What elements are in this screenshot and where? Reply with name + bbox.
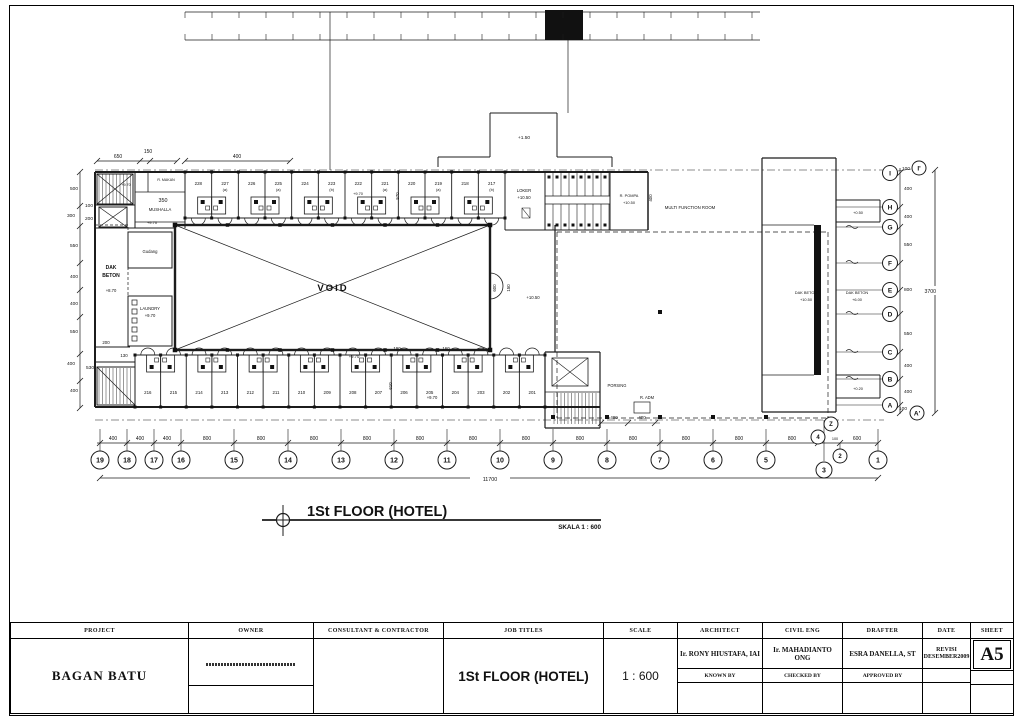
grid-bubble-label: 6 bbox=[711, 458, 715, 465]
plan-label: +1.50 bbox=[518, 135, 530, 141]
plan-label: +0.50 bbox=[853, 210, 864, 215]
plan-label: +10.50 bbox=[800, 297, 813, 302]
plan-label: +10.50 bbox=[526, 295, 540, 300]
grid-bubble-label: 1 bbox=[876, 458, 880, 465]
consultant-value bbox=[314, 639, 443, 713]
room-number: 223 bbox=[328, 181, 336, 186]
known-by-cell bbox=[678, 683, 762, 713]
plan-label: +10.50 bbox=[623, 200, 636, 205]
grid-bubble-label: 17 bbox=[150, 458, 158, 465]
plan-title: 1St FLOOR (HOTEL) bbox=[307, 504, 447, 520]
sheet-header: SHEET bbox=[971, 623, 1013, 639]
dim-label: 800 bbox=[576, 436, 585, 442]
title-block-consultant: CONSULTANT & CONTRACTOR bbox=[314, 623, 444, 713]
dim-label: 400 bbox=[233, 154, 242, 160]
room-number: 213 bbox=[221, 390, 229, 395]
plan-label: R. MAKAN bbox=[157, 178, 175, 182]
dim-label: 500 bbox=[70, 186, 78, 192]
dim-label: 550 bbox=[904, 242, 912, 248]
dim-label: 150 bbox=[144, 149, 153, 155]
floor-plan: 6501504005001003002005504004005504005304… bbox=[0, 0, 1024, 600]
dim-label: 400 bbox=[904, 363, 912, 369]
title-block-architect: ARCHITECT Ir. RONY HIUSTAFA, IAI KNOWN B… bbox=[678, 623, 763, 713]
dim-label: 570 bbox=[395, 192, 400, 200]
grid-bubble-label: A bbox=[888, 402, 893, 409]
grid-bubble-label: 13 bbox=[337, 458, 345, 465]
plan-label: +9.70 bbox=[427, 395, 438, 400]
plan-label: DAK BETON bbox=[795, 290, 818, 295]
dim-label: 650 bbox=[114, 154, 123, 160]
dim-label: 800 bbox=[257, 436, 266, 442]
dim-label: 550 bbox=[70, 243, 78, 249]
grid-bubble-label: 16 bbox=[177, 458, 185, 465]
title-block-date: DATE REVISI DESEMBER2009 bbox=[923, 623, 971, 713]
dim-label: 200 bbox=[85, 216, 93, 222]
dim-label: 400 bbox=[70, 301, 78, 307]
title-block-civil: CIVIL ENG Ir. MAHADIANTO ONG CHECKED BY bbox=[763, 623, 843, 713]
dim-label: 400 bbox=[163, 436, 172, 442]
known-by-header: KNOWN BY bbox=[678, 668, 762, 683]
owner-divider bbox=[189, 685, 313, 686]
grid-bubble-label: E bbox=[888, 287, 893, 294]
title-block-owner: OWNER bbox=[189, 623, 314, 713]
room-number: 215 bbox=[170, 390, 178, 395]
room-suffix: (a) bbox=[276, 187, 281, 192]
sheet-number: A5 bbox=[973, 640, 1011, 669]
project-value: BAGAN BATU bbox=[11, 639, 188, 713]
plan-label: PORSING bbox=[608, 383, 627, 388]
date-header: DATE bbox=[923, 623, 970, 639]
job-header: JOB TITLES bbox=[444, 623, 603, 639]
grid-bubble-label: C bbox=[888, 349, 893, 356]
dim-label: 800 bbox=[310, 436, 319, 442]
room-number: 221 bbox=[381, 181, 389, 186]
dim-label: 400 bbox=[904, 214, 912, 220]
title-block-job: JOB TITLES 1St FLOOR (HOTEL) bbox=[444, 623, 604, 713]
room-number: 226 bbox=[248, 181, 256, 186]
grid-bubble-label: H bbox=[888, 204, 893, 211]
room-suffix: (a) bbox=[383, 187, 388, 192]
room-suffix: (b) bbox=[329, 187, 334, 192]
sheet-empty-row bbox=[971, 670, 1013, 685]
plan-label: DAK bbox=[106, 265, 117, 271]
grid-bubble-label: G bbox=[887, 224, 892, 231]
dim-label: 400 bbox=[109, 436, 118, 442]
dim-label: 800 bbox=[735, 436, 744, 442]
room-number: 210 bbox=[298, 390, 306, 395]
dim-label: 130 bbox=[120, 353, 128, 358]
dim-label: 550 bbox=[70, 329, 78, 335]
owner-header: OWNER bbox=[189, 623, 313, 639]
title-block: PROJECT BAGAN BATU OWNER CONSULTANT & CO… bbox=[10, 622, 1014, 714]
plan-label: DAK BETON bbox=[846, 290, 869, 295]
room-suffix: (a) bbox=[436, 187, 441, 192]
room-number: 201 bbox=[529, 390, 537, 395]
dim-label: 600 bbox=[492, 284, 497, 292]
dim-label: 800 bbox=[363, 436, 372, 442]
grid-bubble-label: 14 bbox=[284, 458, 292, 465]
grid-bubble-label: 19 bbox=[96, 458, 104, 465]
plan-label: MUSHALLA bbox=[149, 207, 172, 212]
scale-value: 1 : 600 bbox=[604, 639, 677, 713]
dim-label: 800 bbox=[629, 436, 638, 442]
room-number: 216 bbox=[144, 390, 152, 395]
dim-label: 160 bbox=[442, 346, 450, 351]
plan-label: +9.70 bbox=[145, 313, 156, 318]
room-number: 227 bbox=[221, 181, 229, 186]
grid-bubble-label: A' bbox=[914, 410, 921, 417]
project-header: PROJECT bbox=[11, 623, 188, 639]
grid-bubble-label: 15 bbox=[230, 458, 238, 465]
plan-label: R. POMPA bbox=[620, 193, 639, 198]
dim-label: 800 bbox=[469, 436, 478, 442]
room-number: 207 bbox=[375, 390, 383, 395]
grid-bubble-label: 5 bbox=[764, 458, 768, 465]
scale-header: SCALE bbox=[604, 623, 677, 639]
owner-cell bbox=[189, 639, 313, 713]
room-number: 211 bbox=[272, 390, 280, 395]
plan-label: +9.70 bbox=[353, 191, 364, 196]
architect-header: ARCHITECT bbox=[678, 623, 762, 639]
dim-label: 400 bbox=[904, 389, 912, 395]
room-number: 204 bbox=[452, 390, 460, 395]
dim-label: 610 bbox=[388, 382, 393, 390]
room-number: 218 bbox=[461, 181, 469, 186]
grid-bubble-label: F bbox=[888, 260, 892, 267]
dim-label: 400 bbox=[67, 361, 75, 367]
dim-label: 550 bbox=[904, 331, 912, 337]
dim-label: 800 bbox=[522, 436, 531, 442]
title-block-drafter: DRAFTER ESRA DANELLA, ST APPROVED BY bbox=[843, 623, 923, 713]
dim-label: 800 bbox=[203, 436, 212, 442]
date-value: REVISI DESEMBER2009 bbox=[923, 639, 970, 668]
room-number: 224 bbox=[301, 181, 309, 186]
grid-bubble-label: 18 bbox=[123, 458, 131, 465]
title-block-sheet: SHEET A5 bbox=[971, 623, 1013, 713]
dim-label: 100 bbox=[902, 166, 910, 172]
date-empty-row bbox=[923, 668, 970, 683]
drafter-header: DRAFTER bbox=[843, 623, 922, 639]
room-number: 208 bbox=[349, 390, 357, 395]
room-suffix: (a) bbox=[223, 187, 228, 192]
grid-bubble-label: Z bbox=[829, 422, 833, 428]
plan-label: R. ADM bbox=[640, 395, 655, 400]
plan-label: +9.70 bbox=[349, 354, 360, 359]
dim-label: 400 bbox=[638, 415, 646, 420]
civil-header: CIVIL ENG bbox=[763, 623, 842, 639]
dim-label: 400 bbox=[648, 194, 653, 202]
room-number: 209 bbox=[324, 390, 332, 395]
dim-label: 800 bbox=[904, 287, 912, 293]
grid-bubble-label: 12 bbox=[390, 458, 398, 465]
dim-label: 190 bbox=[393, 346, 401, 351]
dim-label: 800 bbox=[682, 436, 691, 442]
grid-bubble-label: D bbox=[888, 311, 893, 318]
dim-label: 530 bbox=[86, 365, 94, 371]
room-number: 220 bbox=[408, 181, 416, 186]
grid-bubble-label: 8 bbox=[605, 458, 609, 465]
title-block-project: PROJECT BAGAN BATU bbox=[11, 623, 189, 713]
plan-label: VOID bbox=[317, 283, 348, 294]
plan-label: LOKER bbox=[517, 188, 532, 193]
job-value: 1St FLOOR (HOTEL) bbox=[444, 639, 603, 713]
dim-label: 400 bbox=[70, 388, 78, 394]
room-number: 214 bbox=[195, 390, 203, 395]
room-number: 217 bbox=[488, 181, 496, 186]
drafter-value: ESRA DANELLA, ST bbox=[843, 639, 922, 668]
approved-by-header: APPROVED BY bbox=[843, 668, 922, 683]
grid-bubble-label: 9 bbox=[551, 458, 555, 465]
checked-by-header: CHECKED BY bbox=[763, 668, 842, 683]
plan-scale-note: SKALA 1 : 600 bbox=[558, 524, 601, 531]
dim-label: 600 bbox=[853, 436, 862, 442]
plan-label: BETON bbox=[102, 273, 120, 279]
plan-label: +8.70 bbox=[106, 288, 117, 293]
grid-bubble-label: 3 bbox=[822, 468, 826, 475]
room-number: 212 bbox=[247, 390, 255, 395]
room-number: 203 bbox=[477, 390, 485, 395]
room-number: 228 bbox=[195, 181, 203, 186]
owner-signature bbox=[206, 663, 295, 666]
grid-bubble-label: 11 bbox=[443, 458, 451, 465]
dim-label: 150 bbox=[506, 284, 511, 292]
dim-label: 400 bbox=[136, 436, 145, 442]
dim-label: 100 bbox=[899, 406, 907, 412]
dim-label: 100 bbox=[832, 437, 838, 441]
plan-labels: 228227(a)226225(a)224223(b)222221(a)2202… bbox=[102, 135, 868, 400]
plan-label: +9.70 bbox=[147, 220, 158, 225]
room-suffix: (b) bbox=[489, 187, 494, 192]
room-number: 202 bbox=[503, 390, 511, 395]
dim-label: 800 bbox=[416, 436, 425, 442]
room-number: 225 bbox=[275, 181, 283, 186]
dim-label: 200 bbox=[102, 340, 110, 345]
grid-bubble-label: B bbox=[888, 376, 893, 383]
grid-bubbles: 19181716151413121110987654Z321II'HGFEDCB… bbox=[91, 161, 926, 478]
dim-label: 100 bbox=[85, 203, 93, 209]
plan-label: LAUNDRY bbox=[140, 306, 160, 311]
dim-label: 300 bbox=[67, 213, 75, 219]
room-number: 222 bbox=[355, 181, 363, 186]
checked-by-cell bbox=[763, 683, 842, 713]
dim-total-label: 11700 bbox=[483, 477, 498, 483]
drawing-sheet: 6501504005001003002005504004005504005304… bbox=[0, 0, 1024, 724]
architect-value: Ir. RONY HIUSTAFA, IAI bbox=[678, 639, 762, 668]
room-number: 206 bbox=[400, 390, 408, 395]
title-block-scale: SCALE 1 : 600 bbox=[604, 623, 678, 713]
plan-label: +10.50 bbox=[517, 195, 531, 200]
dim-label: 400 bbox=[610, 415, 618, 420]
plan-label: +9.70 bbox=[121, 183, 130, 187]
dim-label: 800 bbox=[788, 436, 797, 442]
grid-bubble-label: I bbox=[889, 170, 891, 177]
consultant-header: CONSULTANT & CONTRACTOR bbox=[314, 623, 443, 639]
plan-label: +0.20 bbox=[853, 386, 864, 391]
room-number: 219 bbox=[435, 181, 443, 186]
civil-value: Ir. MAHADIANTO ONG bbox=[763, 639, 842, 668]
approved-by-cell bbox=[843, 683, 922, 713]
plan-label: Gudang bbox=[143, 249, 159, 254]
dim-label: 400 bbox=[904, 186, 912, 192]
plan-label: MULTI FUNCTION ROOM bbox=[665, 205, 716, 210]
plan-label: 350 bbox=[159, 198, 168, 204]
grid-bubble-label: 7 bbox=[658, 458, 662, 465]
dim-total-label: 3700 bbox=[924, 289, 936, 295]
grid-bubble-label: 10 bbox=[496, 458, 504, 465]
dim-label: 400 bbox=[70, 274, 78, 280]
grid-bubble-label: I' bbox=[917, 165, 921, 172]
plan-label: +6.00 bbox=[852, 297, 863, 302]
